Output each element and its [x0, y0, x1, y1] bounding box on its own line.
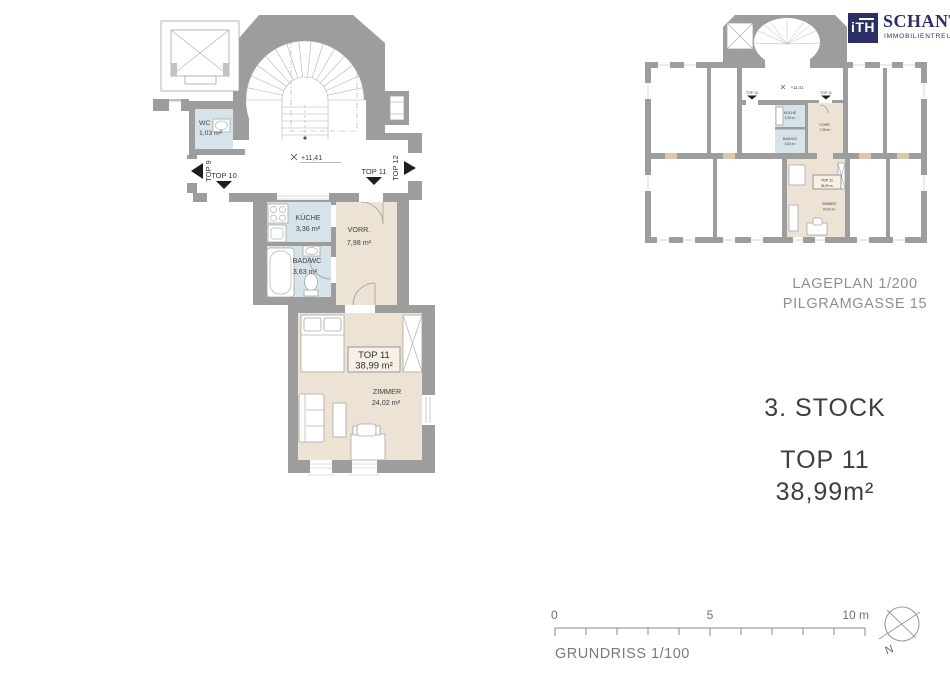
svg-text:VORR.: VORR.: [819, 123, 830, 127]
vorr-area: 7,98 m²: [347, 238, 372, 247]
wc-name: WC: [199, 120, 210, 127]
site-top10-label: TOP 10: [746, 91, 758, 95]
site-top11-label: TOP 11: [820, 91, 832, 95]
site-level-marker: +11,41: [791, 85, 804, 90]
logo-tagline: IMMOBILIENTREUHAND: [884, 33, 950, 40]
svg-text:38,99 m²: 38,99 m²: [821, 184, 834, 188]
company-logo: iTH SCHANTL IMMOBILIENTREUHAND: [845, 10, 950, 45]
vorr-name: VORR.: [348, 225, 371, 234]
wc-area: 1,03 m²: [199, 130, 223, 137]
zimmer-area: 24,02 m²: [372, 398, 401, 407]
svg-text:KÜCHE: KÜCHE: [784, 111, 797, 115]
scale-caption: GRUNDRISS 1/100: [555, 646, 690, 662]
svg-text:3,36 m²: 3,36 m²: [785, 116, 796, 120]
svg-text:ZIMMER: ZIMMER: [822, 202, 837, 206]
svg-text:24,02 m²: 24,02 m²: [823, 208, 836, 212]
kueche-area: 3,36 m²: [296, 224, 321, 233]
site-plan-caption: LAGEPLAN 1/200 PILGRAMGASSE 15: [755, 274, 950, 314]
zimmer-name: ZIMMER: [373, 387, 401, 396]
room-vorr: [336, 202, 397, 305]
unit-area: 38,99m²: [735, 478, 915, 507]
north-label: N: [884, 643, 896, 657]
top12-label: TOP 12: [391, 155, 400, 181]
top10-arrow: [216, 181, 232, 189]
floorplan-sheet: WC 1,03 m² +11,41: [0, 0, 950, 690]
svg-text:BAD/WC: BAD/WC: [783, 137, 798, 141]
scale-tick-10: 10 m: [842, 608, 869, 622]
svg-text:TOP 11: TOP 11: [821, 179, 833, 183]
top11-arrow: [366, 177, 382, 185]
scale-tick-5: 5: [707, 608, 714, 622]
svg-text:+11,41: +11,41: [301, 155, 322, 162]
north-compass: N: [870, 595, 940, 670]
unit-title: TOP 11: [735, 446, 915, 475]
floor-title: 3. STOCK: [735, 394, 915, 423]
logo-name: SCHANTL: [883, 11, 950, 32]
svg-text:7,98 m²: 7,98 m²: [820, 128, 831, 132]
svg-text:TOP 11: TOP 11: [358, 350, 390, 361]
site-plan-caption-line1: LAGEPLAN 1/200: [755, 274, 950, 294]
kitchen-fixtures: [268, 204, 288, 242]
svg-text:3,63 m²: 3,63 m²: [785, 142, 796, 146]
wall-shaft: [390, 96, 404, 120]
site-corridor: +11,41 TOP 10 TOP 11: [740, 73, 845, 105]
logo-mark: iTH: [848, 13, 878, 43]
scale-tick-0: 0: [551, 608, 558, 622]
logo-mark-text: iTH: [848, 19, 878, 35]
main-floor-plan: WC 1,03 m² +11,41: [145, 5, 455, 495]
unit-info: 3. STOCK TOP 11 38,99m²: [735, 394, 915, 507]
bad-name: BAD/WC: [293, 256, 322, 265]
top11-label: TOP 11: [361, 167, 386, 176]
bad-area: 3,63 m²: [293, 267, 318, 276]
unit-label-box: TOP 11 38,99 m²: [348, 347, 400, 372]
site-plan-caption-line2: PILGRAMGASSE 15: [755, 294, 950, 314]
kueche-name: KÜCHE: [295, 213, 320, 222]
top10-label: TOP 10: [211, 171, 237, 180]
svg-text:38,99 m²: 38,99 m²: [355, 361, 393, 372]
site-plan: +11,41 TOP 10 TOP 11 KÜCHE 3,36 m² VORR.…: [645, 15, 935, 255]
elevator: [161, 21, 239, 91]
scale-bar: 0 5 10 m GRUNDRISS 1/100: [545, 600, 885, 670]
